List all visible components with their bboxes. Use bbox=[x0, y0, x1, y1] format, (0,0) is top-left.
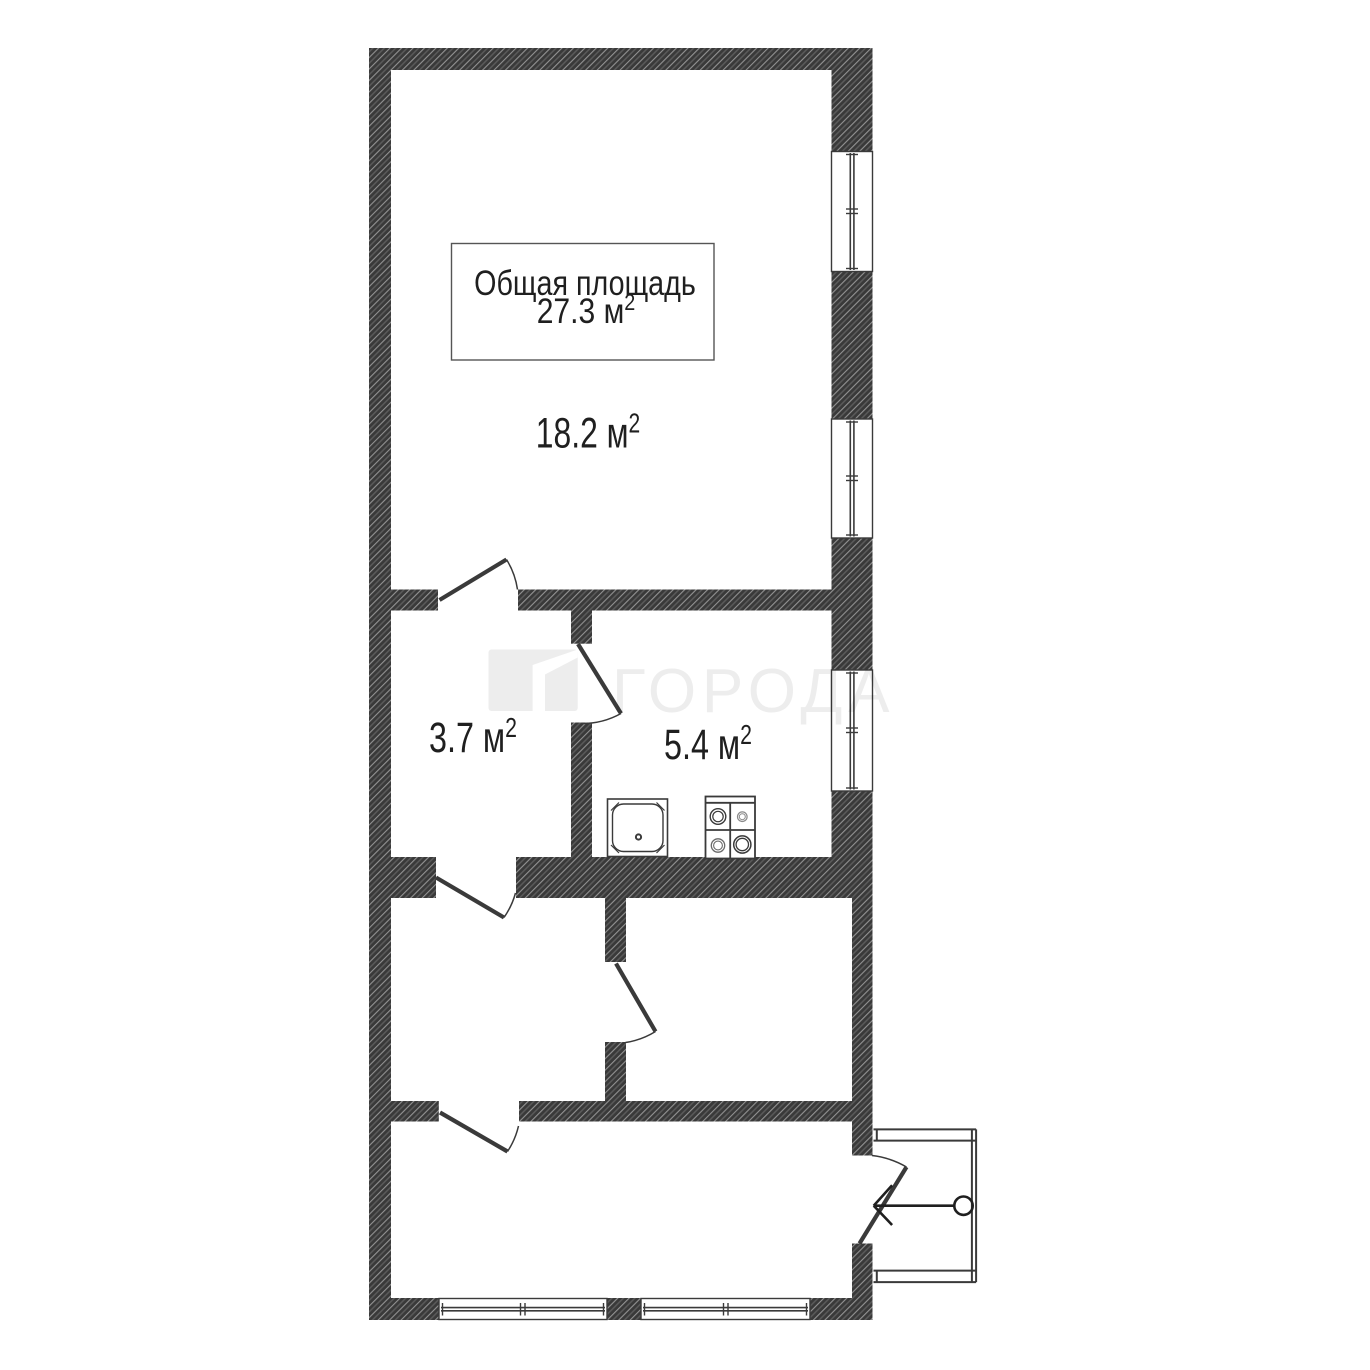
svg-text:27.3 м2: 27.3 м2 bbox=[537, 290, 636, 331]
svg-text:18.2 м2: 18.2 м2 bbox=[536, 409, 640, 457]
svg-text:5.4 м2: 5.4 м2 bbox=[664, 719, 752, 768]
svg-text:ГОРОДА: ГОРОДА bbox=[612, 657, 895, 726]
svg-text:3.7 м2: 3.7 м2 bbox=[429, 712, 517, 761]
